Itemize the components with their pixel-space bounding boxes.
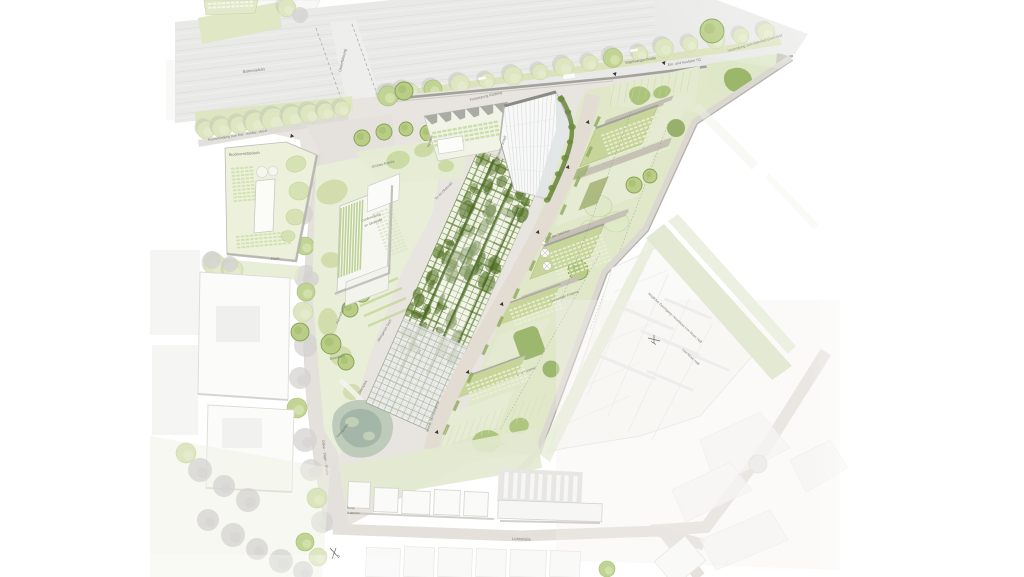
svg-text:Ballroom: Ballroom <box>347 511 360 515</box>
svg-text:Lichtstraße: Lichtstraße <box>512 537 531 542</box>
svg-text:Hotel: Hotel <box>271 257 280 261</box>
svg-text:Sonic: Sonic <box>347 506 355 510</box>
